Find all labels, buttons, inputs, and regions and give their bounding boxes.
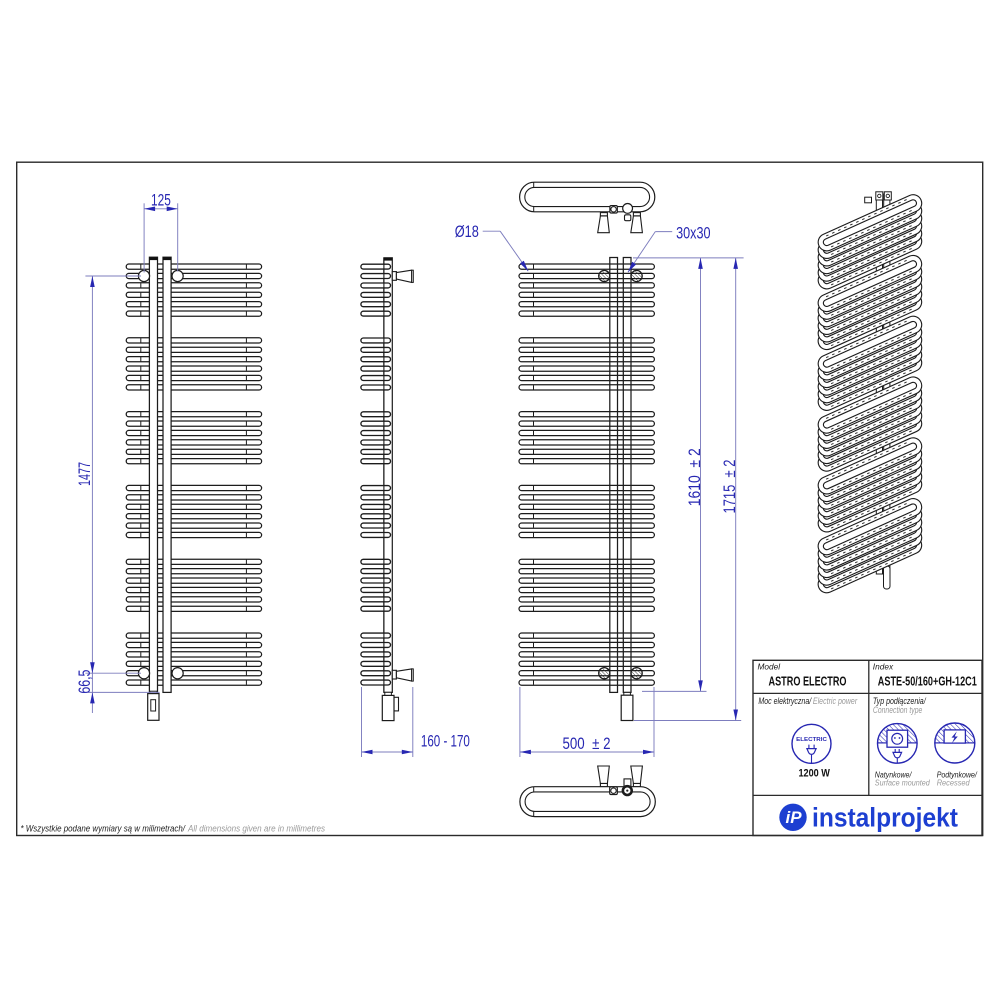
svg-text:1610 ± 2: 1610 ± 2 (686, 448, 704, 506)
svg-text:Index: Index (873, 662, 894, 672)
svg-text:1200 W: 1200 W (798, 768, 830, 780)
svg-text:iP: iP (785, 808, 802, 827)
svg-text:All dimensions given are in mi: All dimensions given are in millimetres (187, 824, 325, 834)
svg-text:66,5: 66,5 (76, 670, 94, 694)
svg-text:160 - 170: 160 - 170 (421, 733, 470, 751)
svg-text:Model: Model (758, 662, 782, 672)
svg-text:125: 125 (151, 191, 171, 209)
svg-text:ELECTRIC: ELECTRIC (796, 737, 827, 743)
svg-text:ASTE-50/160+GH-12C1: ASTE-50/160+GH-12C1 (878, 675, 977, 689)
svg-text:30x30: 30x30 (676, 224, 710, 242)
svg-text:instalprojekt: instalprojekt (812, 803, 958, 833)
svg-text:Surface mounted: Surface mounted (875, 777, 930, 787)
svg-text:ASTRO ELECTRO: ASTRO ELECTRO (769, 675, 847, 689)
svg-text:Ø18: Ø18 (455, 223, 479, 241)
svg-text:500 ± 2: 500 ± 2 (563, 735, 611, 753)
svg-text:* Wszystkie podane wymiary są: * Wszystkie podane wymiary są w milimetr… (21, 824, 187, 834)
svg-text:1715 ± 2: 1715 ± 2 (721, 460, 739, 514)
svg-text:Recessed: Recessed (937, 777, 970, 787)
svg-text:Electric power: Electric power (813, 696, 858, 706)
svg-text:Moc elektryczna/: Moc elektryczna/ (758, 696, 812, 706)
svg-text:Connection type: Connection type (873, 705, 922, 715)
svg-text:1477: 1477 (76, 462, 94, 486)
